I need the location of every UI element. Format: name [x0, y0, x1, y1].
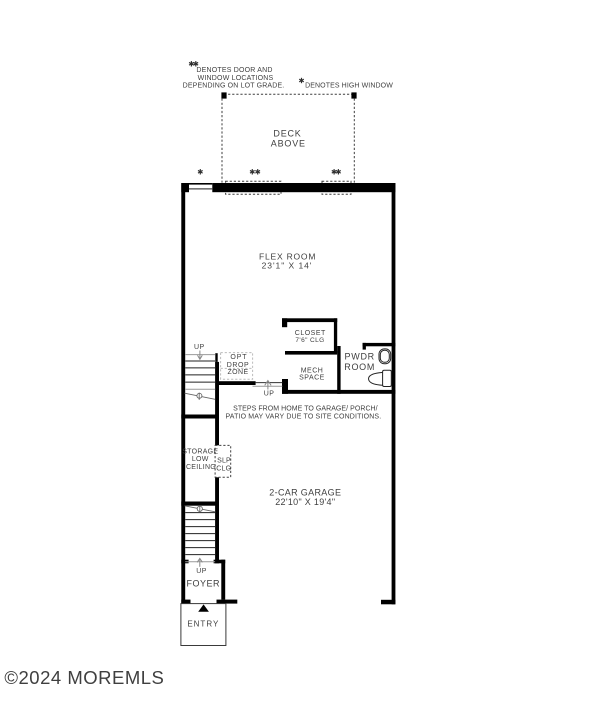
svg-text:UP: UP [264, 391, 275, 398]
svg-text:7'6" CLG: 7'6" CLG [295, 337, 324, 344]
svg-text:STEPS FROM HOME TO GARAGE/ POR: STEPS FROM HOME TO GARAGE/ PORCH/ [233, 405, 378, 412]
svg-text:DROP: DROP [227, 362, 250, 369]
svg-text:PWDR: PWDR [345, 352, 375, 362]
svg-text:ZONE: ZONE [227, 369, 248, 376]
svg-text:DEPENDING ON LOT GRADE.: DEPENDING ON LOT GRADE. [183, 83, 285, 90]
svg-text:22'10" X 19'4": 22'10" X 19'4" [275, 497, 335, 507]
svg-text:PATIO MAY VARY DUE TO SITE CON: PATIO MAY VARY DUE TO SITE CONDITIONS. [225, 414, 381, 421]
svg-text:UP: UP [194, 344, 205, 351]
svg-text:DENOTES HIGH WINDOW: DENOTES HIGH WINDOW [305, 83, 393, 90]
svg-text:SLP: SLP [217, 457, 231, 464]
svg-text:LOW: LOW [192, 456, 209, 463]
svg-text:FOYER: FOYER [187, 579, 221, 589]
svg-text:ROOM: ROOM [344, 362, 375, 372]
svg-text:ABOVE: ABOVE [271, 139, 306, 149]
svg-text:DENOTES DOOR AND: DENOTES DOOR AND [196, 67, 272, 74]
svg-text:MECH: MECH [301, 367, 324, 374]
svg-text:DECK: DECK [273, 128, 301, 138]
svg-text:23'1" X 14': 23'1" X 14' [262, 260, 313, 270]
svg-text:CEILING: CEILING [186, 464, 216, 471]
svg-text:2-CAR GARAGE: 2-CAR GARAGE [269, 487, 341, 497]
svg-text:CLG: CLG [216, 465, 231, 472]
svg-text:ENTRY: ENTRY [187, 620, 219, 629]
svg-text:STORAGE: STORAGE [182, 448, 218, 455]
svg-text:UP: UP [196, 568, 207, 575]
svg-text:©2024 MOREMLS: ©2024 MOREMLS [4, 667, 164, 688]
svg-text:SPACE: SPACE [299, 374, 325, 381]
svg-text:WINDOW LOCATIONS: WINDOW LOCATIONS [198, 75, 274, 82]
svg-text:OPT: OPT [230, 354, 247, 361]
